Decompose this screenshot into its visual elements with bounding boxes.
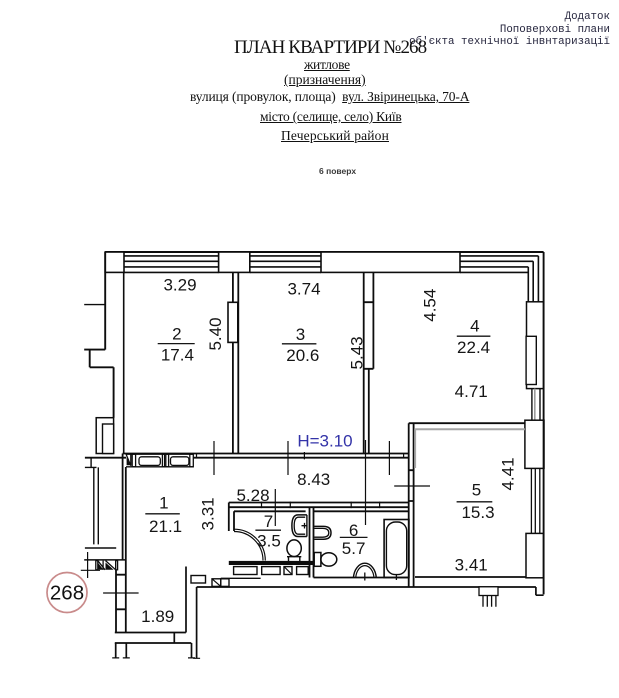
svg-text:3.29: 3.29 xyxy=(163,276,196,295)
svg-text:3: 3 xyxy=(296,325,305,344)
svg-text:5: 5 xyxy=(472,481,481,500)
svg-text:4.54: 4.54 xyxy=(420,289,439,322)
svg-text:8.43: 8.43 xyxy=(297,470,330,489)
svg-text:22.4: 22.4 xyxy=(457,338,490,357)
svg-text:20.6: 20.6 xyxy=(286,346,319,365)
svg-text:268: 268 xyxy=(50,582,84,605)
svg-text:1.89: 1.89 xyxy=(141,607,174,626)
svg-text:5.7: 5.7 xyxy=(342,539,366,558)
svg-text:4.41: 4.41 xyxy=(499,457,518,490)
svg-text:3.31: 3.31 xyxy=(199,497,218,530)
svg-text:3.5: 3.5 xyxy=(257,532,281,551)
svg-text:4.71: 4.71 xyxy=(455,382,488,401)
svg-text:5.40: 5.40 xyxy=(206,317,225,350)
svg-text:3.41: 3.41 xyxy=(455,556,488,575)
svg-text:5.43: 5.43 xyxy=(348,336,367,369)
svg-text:15.3: 15.3 xyxy=(461,503,494,522)
svg-text:5.28: 5.28 xyxy=(236,486,269,505)
svg-text:21.1: 21.1 xyxy=(149,517,182,536)
svg-text:17.4: 17.4 xyxy=(161,346,194,365)
svg-text:3.74: 3.74 xyxy=(287,279,320,298)
svg-text:4: 4 xyxy=(470,317,479,336)
svg-text:7: 7 xyxy=(264,512,273,531)
svg-text:1: 1 xyxy=(159,494,168,513)
svg-text:2: 2 xyxy=(172,324,181,343)
svg-text:H=3.10: H=3.10 xyxy=(297,431,352,450)
